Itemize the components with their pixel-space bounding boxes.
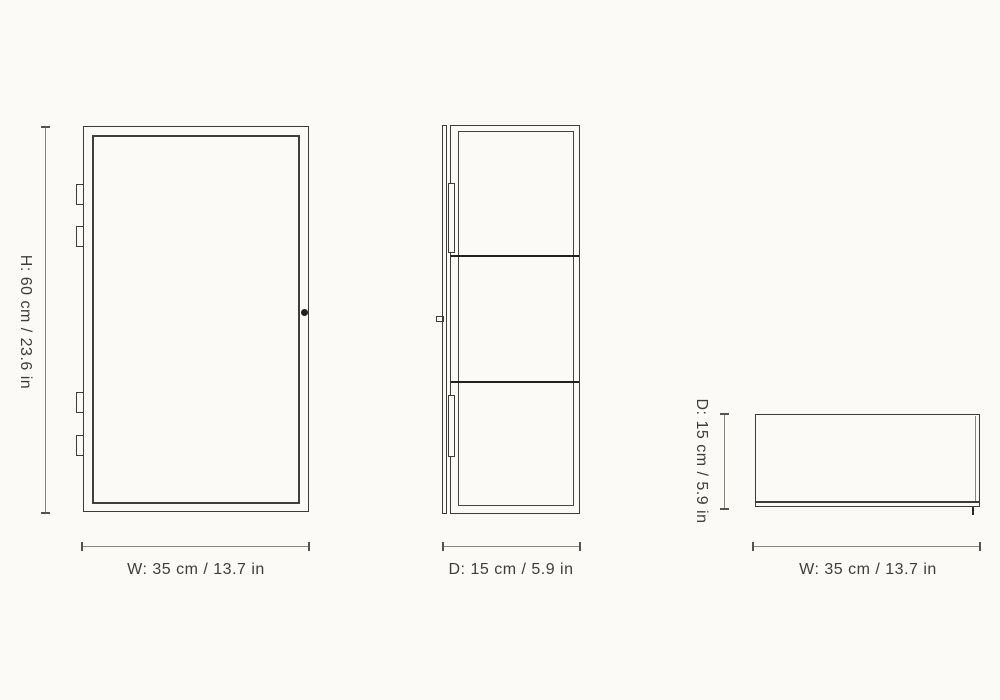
dimension-tick — [979, 542, 981, 551]
dimension-tick — [720, 413, 729, 415]
dimension-tick — [720, 508, 729, 510]
side-view: D: 15 cm / 5.9 in — [420, 0, 680, 700]
top-depth-dimension-label: D: 15 cm / 5.9 in — [691, 351, 711, 571]
front-door-inner-frame — [92, 135, 300, 504]
dimension-tick — [752, 542, 754, 551]
top-width-dimension-label: W: 35 cm / 13.7 in — [758, 560, 978, 580]
hinge-bottom-1 — [76, 392, 84, 413]
dimension-tick — [308, 542, 310, 551]
front-width-dimension-label: W: 35 cm / 13.7 in — [86, 560, 306, 580]
top-depth-dimension-line — [724, 413, 725, 510]
side-depth-dimension-label: D: 15 cm / 5.9 in — [401, 560, 621, 580]
shelf-line-upper — [451, 255, 579, 257]
hinge-top-2 — [76, 226, 84, 247]
top-width-dimension-line — [753, 546, 980, 547]
dimension-tick — [41, 126, 50, 128]
top-inner-side-line — [975, 416, 976, 502]
side-hinge-plate-upper — [448, 183, 455, 253]
front-view: H: 60 cm / 23.6 in W: 35 cm / 13.7 in — [0, 0, 420, 700]
side-hinge-plate-lower — [448, 395, 455, 457]
dimension-tick — [579, 542, 581, 551]
top-door-knob — [972, 507, 974, 515]
top-view: D: 15 cm / 5.9 in W: 35 cm / 13.7 in — [680, 0, 1000, 700]
dimension-tick — [81, 542, 83, 551]
top-body-frame — [755, 414, 980, 507]
side-depth-dimension-line — [443, 546, 580, 547]
hinge-top-1 — [76, 184, 84, 205]
dimension-tick — [41, 512, 50, 514]
shelf-line-lower — [451, 381, 579, 383]
side-inner-frame — [458, 131, 574, 506]
hinge-bottom-2 — [76, 435, 84, 456]
top-door-edge-line — [756, 501, 979, 503]
dimension-diagram: H: 60 cm / 23.6 in W: 35 cm / 13.7 in D:… — [0, 0, 1000, 700]
height-dimension-label: H: 60 cm / 23.6 in — [15, 212, 35, 432]
height-dimension-line — [45, 126, 46, 514]
door-knob — [301, 309, 308, 316]
dimension-tick — [442, 542, 444, 551]
side-door-handle — [436, 316, 444, 322]
front-width-dimension-line — [82, 546, 309, 547]
